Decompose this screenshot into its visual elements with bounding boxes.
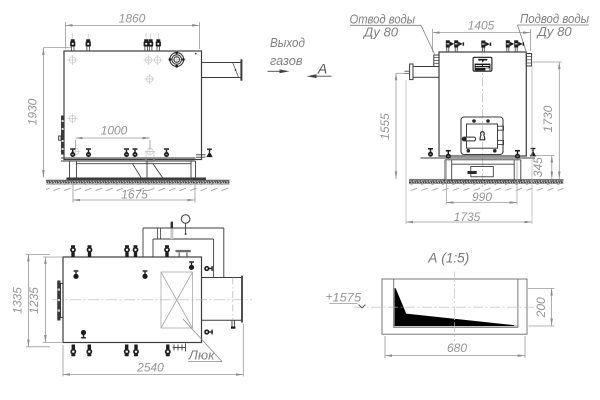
svg-text:Ду 80: Ду 80: [362, 25, 398, 39]
svg-text:1575: 1575: [332, 291, 361, 305]
svg-text:1860: 1860: [119, 12, 146, 26]
svg-text:2540: 2540: [136, 361, 164, 375]
svg-text:1735: 1735: [454, 210, 481, 224]
svg-text:А (1:5): А (1:5): [427, 251, 469, 266]
svg-text:1405: 1405: [468, 19, 495, 33]
svg-text:680: 680: [447, 341, 467, 355]
svg-text:1930: 1930: [26, 98, 40, 125]
svg-text:1675: 1675: [121, 188, 148, 202]
svg-text:1235: 1235: [27, 287, 41, 314]
svg-text:Отвод воды: Отвод воды: [350, 12, 416, 26]
svg-text:345: 345: [531, 157, 545, 177]
svg-text:А: А: [317, 61, 327, 77]
svg-text:200: 200: [534, 297, 548, 318]
svg-text:1335: 1335: [11, 287, 25, 314]
svg-text:1555: 1555: [378, 113, 392, 140]
svg-text:Выход: Выход: [270, 36, 305, 50]
svg-text:Ду 80: Ду 80: [536, 25, 572, 39]
svg-text:1730: 1730: [541, 105, 555, 132]
svg-text:Люк: Люк: [187, 349, 215, 363]
svg-text:газов: газов: [270, 54, 303, 68]
svg-text:1000: 1000: [101, 124, 128, 138]
svg-text:990: 990: [472, 190, 492, 204]
